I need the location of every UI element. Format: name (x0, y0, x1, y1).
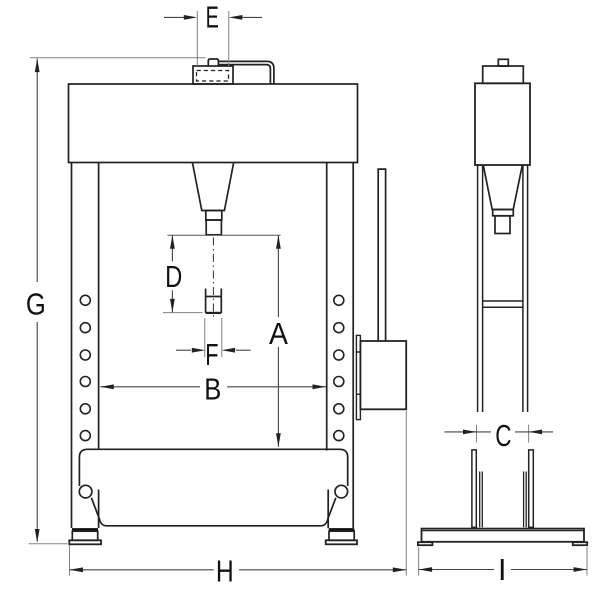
svg-text:E: E (206, 2, 219, 35)
svg-text:H: H (216, 554, 234, 588)
svg-text:C: C (495, 419, 511, 453)
svg-text:F: F (205, 337, 218, 372)
svg-text:A: A (269, 317, 288, 351)
svg-text:G: G (26, 288, 46, 322)
svg-text:D: D (165, 259, 182, 294)
svg-text:I: I (498, 553, 506, 587)
svg-text:B: B (204, 372, 221, 406)
